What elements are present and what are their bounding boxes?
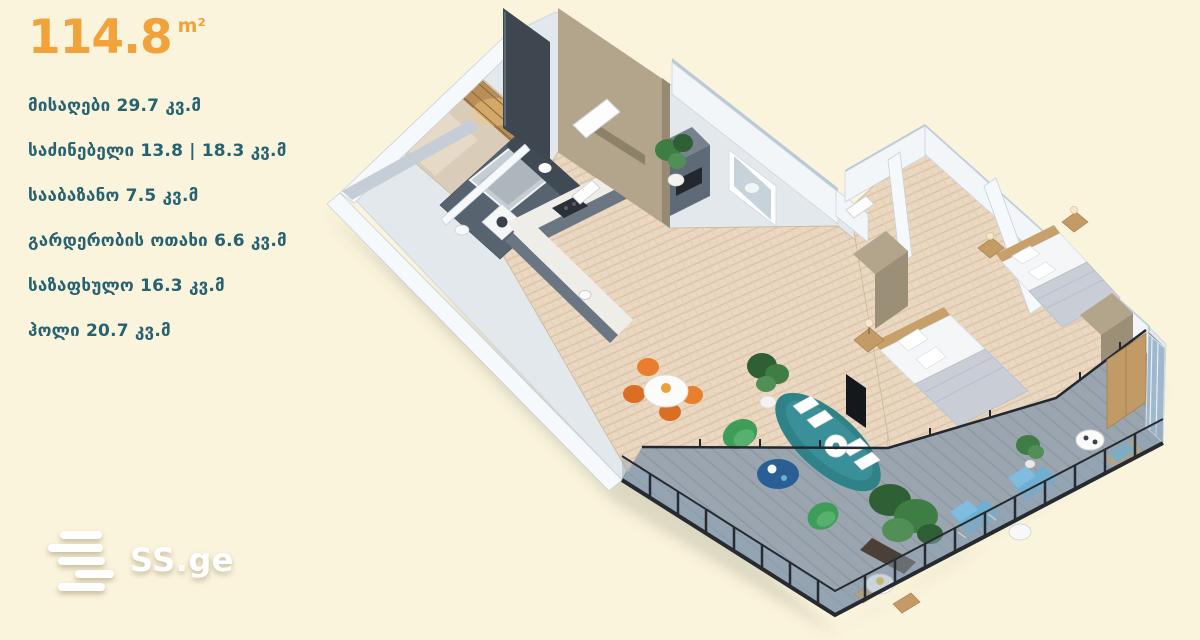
terrace-table-2 <box>1009 524 1031 540</box>
room-item-bathroom: სააბაზანო 7.5 კვ.მ <box>28 187 287 205</box>
ss-logo-text: SS.ge <box>130 541 234 579</box>
room-label: საზაფხულო 16.3 კვ.მ <box>28 276 225 296</box>
area-unit: m² <box>178 15 206 37</box>
room-label: მისაღები 29.7 კვ.მ <box>28 96 201 116</box>
room-list: მისაღები 29.7 კვ.მ საძინებელი 13.8 | 18.… <box>28 97 287 367</box>
room-label: საძინებელი 13.8 | 18.3 კვ.მ <box>28 141 287 161</box>
room-label: სააბაზანო 7.5 კვ.მ <box>28 186 198 206</box>
coffee-table <box>757 459 799 489</box>
ss-logo: SS.ge <box>48 529 234 591</box>
room-item-terrace: საზაფხულო 16.3 კვ.მ <box>28 277 287 295</box>
area-header: 114.8m² <box>28 10 206 65</box>
room-item-hall: ჰოლი 20.7 კვ.მ <box>28 322 287 340</box>
room-item-living: მისაღები 29.7 კვ.მ <box>28 97 287 115</box>
area-value: 114.8 <box>28 10 172 65</box>
room-label: ჰოლი 20.7 კვ.მ <box>28 321 171 341</box>
room-item-bedrooms: საძინებელი 13.8 | 18.3 კვ.მ <box>28 142 287 160</box>
floorplan-page: 114.8m² მისაღები 29.7 კვ.მ საძინებელი 13… <box>0 0 1200 640</box>
kitchen-sink <box>579 291 591 300</box>
terrace-table-1 <box>1076 430 1104 450</box>
nightstand-3 <box>1062 207 1088 233</box>
room-label: გარდერობის ოთახი 6.6 კვ.მ <box>28 231 287 251</box>
ss-logo-icon <box>48 529 114 591</box>
toilet <box>455 225 469 235</box>
room-item-wardrobe: გარდერობის ოთახი 6.6 კვ.მ <box>28 232 287 250</box>
